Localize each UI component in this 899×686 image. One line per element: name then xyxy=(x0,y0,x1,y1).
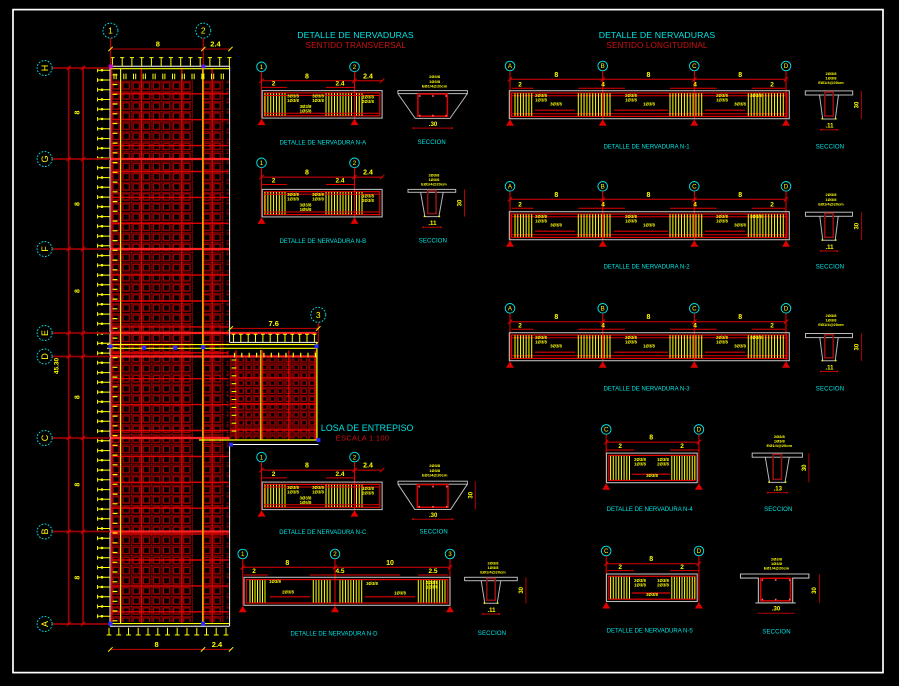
svg-text:1: 1 xyxy=(241,551,245,558)
svg-text:2: 2 xyxy=(272,471,276,478)
svg-text:8: 8 xyxy=(647,72,651,79)
svg-text:4: 4 xyxy=(601,323,605,330)
svg-text:1Ø3/8: 1Ø3/8 xyxy=(634,462,646,467)
svg-text:45.30: 45.30 xyxy=(54,357,61,374)
svg-text:2: 2 xyxy=(333,551,337,558)
svg-text:2.4: 2.4 xyxy=(210,40,221,49)
svg-text:1Ø3/8: 1Ø3/8 xyxy=(535,340,547,345)
svg-text:2.4: 2.4 xyxy=(363,73,373,80)
svg-text:DETALLE DE NERVADURA N-5: DETALLE DE NERVADURA N-5 xyxy=(607,629,694,635)
svg-text:A: A xyxy=(40,621,50,627)
svg-text:2: 2 xyxy=(770,202,774,209)
svg-text:30: 30 xyxy=(802,464,808,471)
svg-text:EØ1/4@20cm: EØ1/4@20cm xyxy=(421,182,447,187)
svg-text:.11: .11 xyxy=(825,245,834,251)
svg-text:4: 4 xyxy=(693,323,697,330)
svg-text:4: 4 xyxy=(693,202,697,209)
svg-text:.30: .30 xyxy=(429,122,438,128)
svg-text:SECCION: SECCION xyxy=(418,140,446,146)
svg-text:2: 2 xyxy=(518,82,522,89)
svg-text:30: 30 xyxy=(519,586,525,593)
svg-text:EØ1/4@20cm: EØ1/4@20cm xyxy=(767,443,793,448)
svg-text:8: 8 xyxy=(554,314,558,321)
svg-text:F: F xyxy=(40,246,50,252)
svg-text:G: G xyxy=(40,155,50,162)
svg-text:4: 4 xyxy=(601,202,605,209)
svg-text:2: 2 xyxy=(770,82,774,89)
svg-text:3Ø3/8: 3Ø3/8 xyxy=(550,102,562,107)
svg-text:D: D xyxy=(784,306,789,313)
svg-text:.13: .13 xyxy=(774,486,783,492)
svg-text:1Ø3/8: 1Ø3/8 xyxy=(716,340,728,345)
svg-text:3Ø3/8: 3Ø3/8 xyxy=(734,102,746,107)
svg-text:EØ1/4@20cm: EØ1/4@20cm xyxy=(422,83,448,88)
svg-text:2: 2 xyxy=(353,454,357,461)
svg-text:8: 8 xyxy=(554,192,558,199)
svg-text:3Ø3/8: 3Ø3/8 xyxy=(734,344,746,349)
svg-text:1Ø3/8: 1Ø3/8 xyxy=(287,98,299,103)
svg-text:DETALLE DE NERVADURA N-D: DETALLE DE NERVADURA N-D xyxy=(290,631,378,637)
svg-text:SECCION: SECCION xyxy=(816,144,844,150)
svg-text:H: H xyxy=(40,65,50,72)
svg-text:B: B xyxy=(601,63,605,70)
svg-text:C: C xyxy=(40,434,50,441)
svg-text:EØ1/4@20cm: EØ1/4@20cm xyxy=(764,566,790,571)
svg-text:10: 10 xyxy=(386,560,394,567)
svg-text:B: B xyxy=(601,184,605,191)
svg-text:8: 8 xyxy=(738,314,742,321)
svg-text:2.4: 2.4 xyxy=(335,178,344,185)
svg-text:EØ1/4@20cm: EØ1/4@20cm xyxy=(422,472,448,477)
svg-text:30: 30 xyxy=(468,491,474,498)
svg-text:.11: .11 xyxy=(428,221,437,227)
svg-text:C: C xyxy=(604,548,609,555)
svg-text:C: C xyxy=(692,184,697,191)
svg-text:1: 1 xyxy=(260,160,264,167)
svg-text:DETALLE DE NERVADURA N-A: DETALLE DE NERVADURA N-A xyxy=(279,141,366,147)
svg-text:1Ø3/8: 1Ø3/8 xyxy=(426,585,438,590)
svg-text:EØ1/4@20cm: EØ1/4@20cm xyxy=(818,322,844,327)
svg-text:30: 30 xyxy=(854,101,860,108)
svg-text:2.4: 2.4 xyxy=(335,81,344,88)
svg-text:3Ø3/8: 3Ø3/8 xyxy=(550,223,562,228)
svg-text:4: 4 xyxy=(693,82,697,89)
svg-text:2.4: 2.4 xyxy=(363,463,373,470)
svg-text:EØ1/4@20cm: EØ1/4@20cm xyxy=(818,201,844,206)
svg-text:1Ø3/8: 1Ø3/8 xyxy=(643,344,655,349)
svg-text:SENTIDO LONGITUDINAL: SENTIDO LONGITUDINAL xyxy=(606,41,708,50)
svg-text:2.4: 2.4 xyxy=(335,471,344,478)
svg-text:E: E xyxy=(40,330,50,336)
svg-text:8: 8 xyxy=(647,314,651,321)
svg-text:2Ø3/8: 2Ø3/8 xyxy=(750,335,762,340)
svg-text:2Ø3/8: 2Ø3/8 xyxy=(750,214,762,219)
svg-text:8: 8 xyxy=(156,40,160,49)
svg-text:1Ø3/8: 1Ø3/8 xyxy=(269,579,281,584)
svg-text:SENTIDO TRANSVERSAL: SENTIDO TRANSVERSAL xyxy=(306,41,407,50)
svg-text:C: C xyxy=(604,427,609,434)
svg-text:SECCION: SECCION xyxy=(764,507,792,513)
svg-text:D: D xyxy=(784,63,789,70)
svg-text:1Ø3/8: 1Ø3/8 xyxy=(634,583,646,588)
svg-text:ESCALA 1:100: ESCALA 1:100 xyxy=(336,434,390,443)
svg-text:3Ø3/8: 3Ø3/8 xyxy=(646,473,658,478)
svg-text:8: 8 xyxy=(75,395,82,399)
svg-text:DETALLE DE NERVADURA N-3: DETALLE DE NERVADURA N-3 xyxy=(604,386,691,392)
svg-text:30: 30 xyxy=(812,587,818,594)
svg-text:DETALLE DE NERVADURAS: DETALLE DE NERVADURAS xyxy=(297,30,414,40)
svg-text:8: 8 xyxy=(75,289,82,293)
svg-text:1Ø3/8: 1Ø3/8 xyxy=(287,197,299,202)
svg-text:1Ø5/8: 1Ø5/8 xyxy=(300,500,312,505)
svg-text:SECCION: SECCION xyxy=(816,386,844,392)
svg-text:D: D xyxy=(784,184,789,191)
svg-text:8: 8 xyxy=(305,73,309,80)
svg-text:8: 8 xyxy=(649,556,653,563)
svg-text:.30: .30 xyxy=(772,606,781,612)
svg-text:8: 8 xyxy=(554,72,558,79)
svg-text:2.4: 2.4 xyxy=(363,170,373,177)
svg-text:1Ø3/8: 1Ø3/8 xyxy=(716,219,728,224)
svg-text:EØ1/4@20cm: EØ1/4@20cm xyxy=(818,80,844,85)
svg-text:EØ1/4@20cm: EØ1/4@20cm xyxy=(480,570,506,575)
svg-text:1Ø3/8: 1Ø3/8 xyxy=(643,223,655,228)
svg-text:.11: .11 xyxy=(825,365,834,371)
svg-text:C: C xyxy=(692,63,697,70)
svg-text:DETALLE DE NERVADURA N-B: DETALLE DE NERVADURA N-B xyxy=(279,239,366,245)
svg-text:8: 8 xyxy=(75,483,82,487)
svg-text:1Ø3/8: 1Ø3/8 xyxy=(287,489,299,494)
svg-text:8: 8 xyxy=(305,463,309,470)
svg-text:2: 2 xyxy=(618,443,622,450)
svg-text:1Ø3/8: 1Ø3/8 xyxy=(312,489,324,494)
svg-text:1Ø5/8: 1Ø5/8 xyxy=(300,207,312,212)
svg-text:1Ø3/8: 1Ø3/8 xyxy=(312,98,324,103)
svg-text:1Ø3/8: 1Ø3/8 xyxy=(716,98,728,103)
svg-text:1: 1 xyxy=(260,64,264,71)
svg-text:1Ø3/8: 1Ø3/8 xyxy=(625,98,637,103)
svg-text:2: 2 xyxy=(272,81,276,88)
svg-text:3Ø3/8: 3Ø3/8 xyxy=(734,223,746,228)
svg-text:3: 3 xyxy=(316,310,321,320)
svg-text:3Ø3/8: 3Ø3/8 xyxy=(366,581,378,586)
svg-text:8: 8 xyxy=(738,192,742,199)
svg-text:1Ø3/8: 1Ø3/8 xyxy=(625,219,637,224)
svg-text:1Ø3/8: 1Ø3/8 xyxy=(394,591,406,596)
svg-text:2: 2 xyxy=(680,443,684,450)
svg-text:1Ø3/8: 1Ø3/8 xyxy=(535,219,547,224)
svg-text:2: 2 xyxy=(353,160,357,167)
svg-text:SECCION: SECCION xyxy=(816,264,844,270)
svg-text:DETALLE DE NERVADURA N-C: DETALLE DE NERVADURA N-C xyxy=(279,530,367,536)
svg-text:1Ø3/8: 1Ø3/8 xyxy=(625,340,637,345)
svg-text:2: 2 xyxy=(201,26,206,36)
svg-text:1: 1 xyxy=(260,454,264,461)
svg-text:2Ø3/8: 2Ø3/8 xyxy=(657,462,669,467)
svg-text:7.6: 7.6 xyxy=(268,319,278,328)
svg-text:SECCION: SECCION xyxy=(478,631,506,637)
svg-text:2Ø3/8: 2Ø3/8 xyxy=(657,583,669,588)
svg-text:4.5: 4.5 xyxy=(335,568,344,575)
svg-text:.11: .11 xyxy=(487,608,496,614)
svg-text:30: 30 xyxy=(855,222,861,229)
svg-text:8: 8 xyxy=(155,640,159,649)
svg-text:2Ø3/8: 2Ø3/8 xyxy=(282,590,294,595)
svg-text:1Ø3/8: 1Ø3/8 xyxy=(312,197,324,202)
svg-text:2: 2 xyxy=(770,323,774,330)
svg-text:SECCION: SECCION xyxy=(420,530,448,536)
svg-text:2Ø3/8: 2Ø3/8 xyxy=(362,198,374,203)
svg-text:SECCION: SECCION xyxy=(419,239,447,245)
svg-text:.11: .11 xyxy=(825,124,834,130)
svg-text:8: 8 xyxy=(75,111,82,115)
svg-text:DETALLE DE NERVADURA N-4: DETALLE DE NERVADURA N-4 xyxy=(607,507,694,513)
svg-text:2Ø3/8: 2Ø3/8 xyxy=(362,99,374,104)
svg-text:SECCION: SECCION xyxy=(762,629,790,635)
svg-text:1Ø3/8: 1Ø3/8 xyxy=(643,102,655,107)
svg-text:.30: .30 xyxy=(429,513,438,519)
svg-text:8: 8 xyxy=(738,72,742,79)
svg-text:C: C xyxy=(692,306,697,313)
svg-text:1Ø5/8: 1Ø5/8 xyxy=(300,108,312,113)
svg-text:B: B xyxy=(601,306,605,313)
svg-text:8: 8 xyxy=(305,170,309,177)
svg-text:2: 2 xyxy=(252,568,256,575)
svg-text:2Ø3/8: 2Ø3/8 xyxy=(362,491,374,496)
svg-text:30: 30 xyxy=(458,199,464,206)
svg-text:DETALLE DE NERVADURA N-1: DETALLE DE NERVADURA N-1 xyxy=(604,144,691,150)
svg-text:D: D xyxy=(697,548,702,555)
svg-text:D: D xyxy=(697,427,702,434)
svg-text:1: 1 xyxy=(108,26,113,36)
svg-text:LOSA DE ENTREPISO: LOSA DE ENTREPISO xyxy=(321,423,414,433)
svg-text:2: 2 xyxy=(680,564,684,571)
svg-text:2: 2 xyxy=(353,64,357,71)
svg-text:8: 8 xyxy=(75,576,82,580)
svg-text:DETALLE DE NERVADURA N-2: DETALLE DE NERVADURA N-2 xyxy=(604,264,691,270)
svg-text:2: 2 xyxy=(518,323,522,330)
svg-text:2Ø3/8: 2Ø3/8 xyxy=(750,93,762,98)
svg-text:8: 8 xyxy=(649,435,653,442)
svg-text:DETALLE DE NERVADURAS: DETALLE DE NERVADURAS xyxy=(599,30,716,40)
svg-text:3Ø3/8: 3Ø3/8 xyxy=(646,592,658,597)
svg-text:4: 4 xyxy=(601,82,605,89)
svg-text:1Ø3/8: 1Ø3/8 xyxy=(535,98,547,103)
svg-text:3: 3 xyxy=(448,551,452,558)
svg-text:D: D xyxy=(40,353,50,360)
svg-text:2: 2 xyxy=(272,178,276,185)
svg-text:B: B xyxy=(40,528,50,534)
svg-text:3Ø3/8: 3Ø3/8 xyxy=(550,344,562,349)
svg-text:30: 30 xyxy=(855,343,861,350)
svg-text:8: 8 xyxy=(285,560,289,567)
svg-text:2.4: 2.4 xyxy=(212,640,223,649)
svg-text:2.5: 2.5 xyxy=(428,568,437,575)
svg-text:2: 2 xyxy=(618,564,622,571)
svg-text:8: 8 xyxy=(647,192,651,199)
svg-text:8: 8 xyxy=(75,202,82,206)
svg-text:2: 2 xyxy=(518,202,522,209)
